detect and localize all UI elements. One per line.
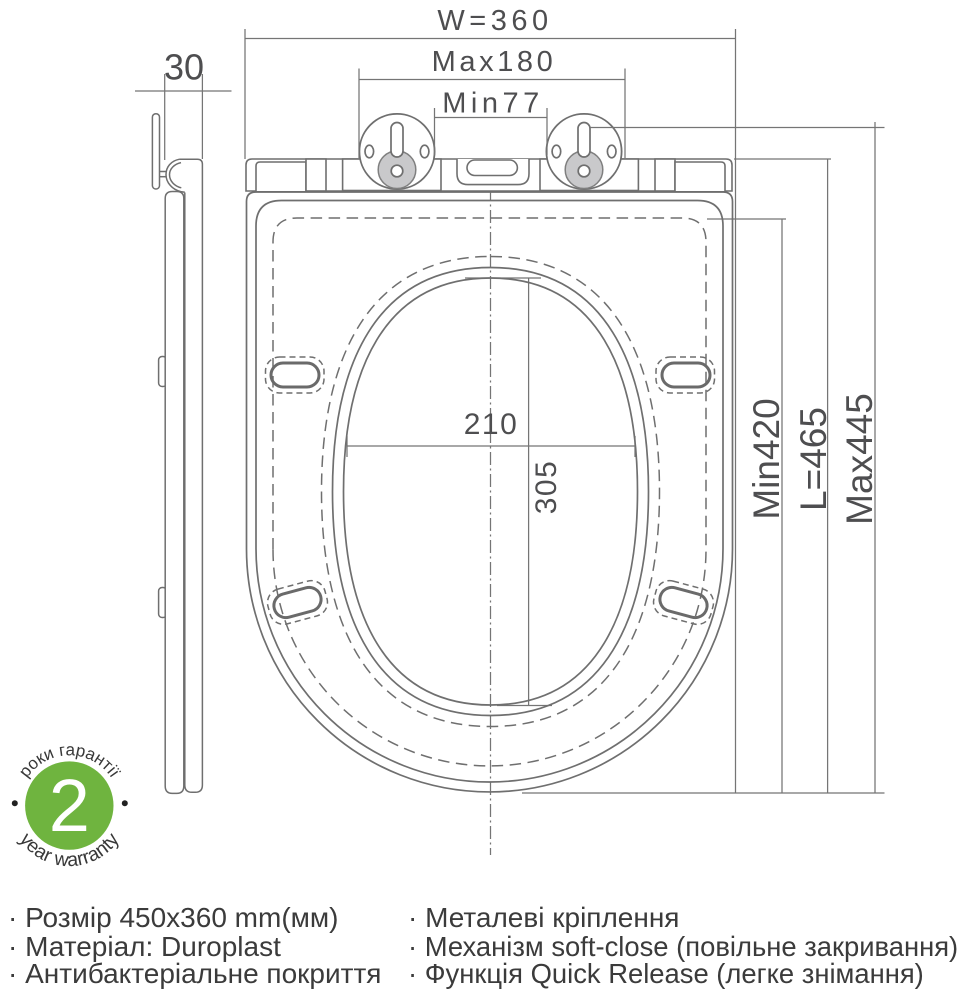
svg-text:210: 210 [464, 408, 519, 441]
svg-text:30: 30 [164, 47, 204, 88]
svg-text:Max180: Max180 [432, 46, 557, 78]
svg-text:· Металеві кріплення: · Металеві кріплення [408, 902, 679, 933]
svg-text:Min420: Min420 [746, 398, 787, 519]
svg-text:W=360: W=360 [437, 5, 552, 37]
svg-text:2: 2 [49, 764, 90, 847]
svg-text:L=465: L=465 [793, 407, 834, 511]
svg-text:· Антибактеріальне покриття: · Антибактеріальне покриття [8, 958, 381, 989]
svg-text:· Розмір 450x360 mm(мм): · Розмір 450x360 mm(мм) [8, 902, 338, 933]
svg-text:Max445: Max445 [839, 393, 880, 525]
svg-text:Min77: Min77 [442, 88, 544, 120]
svg-text:· Функція Quick Release (легке: · Функція Quick Release (легке знімання) [408, 958, 924, 989]
svg-text:305: 305 [530, 460, 563, 515]
